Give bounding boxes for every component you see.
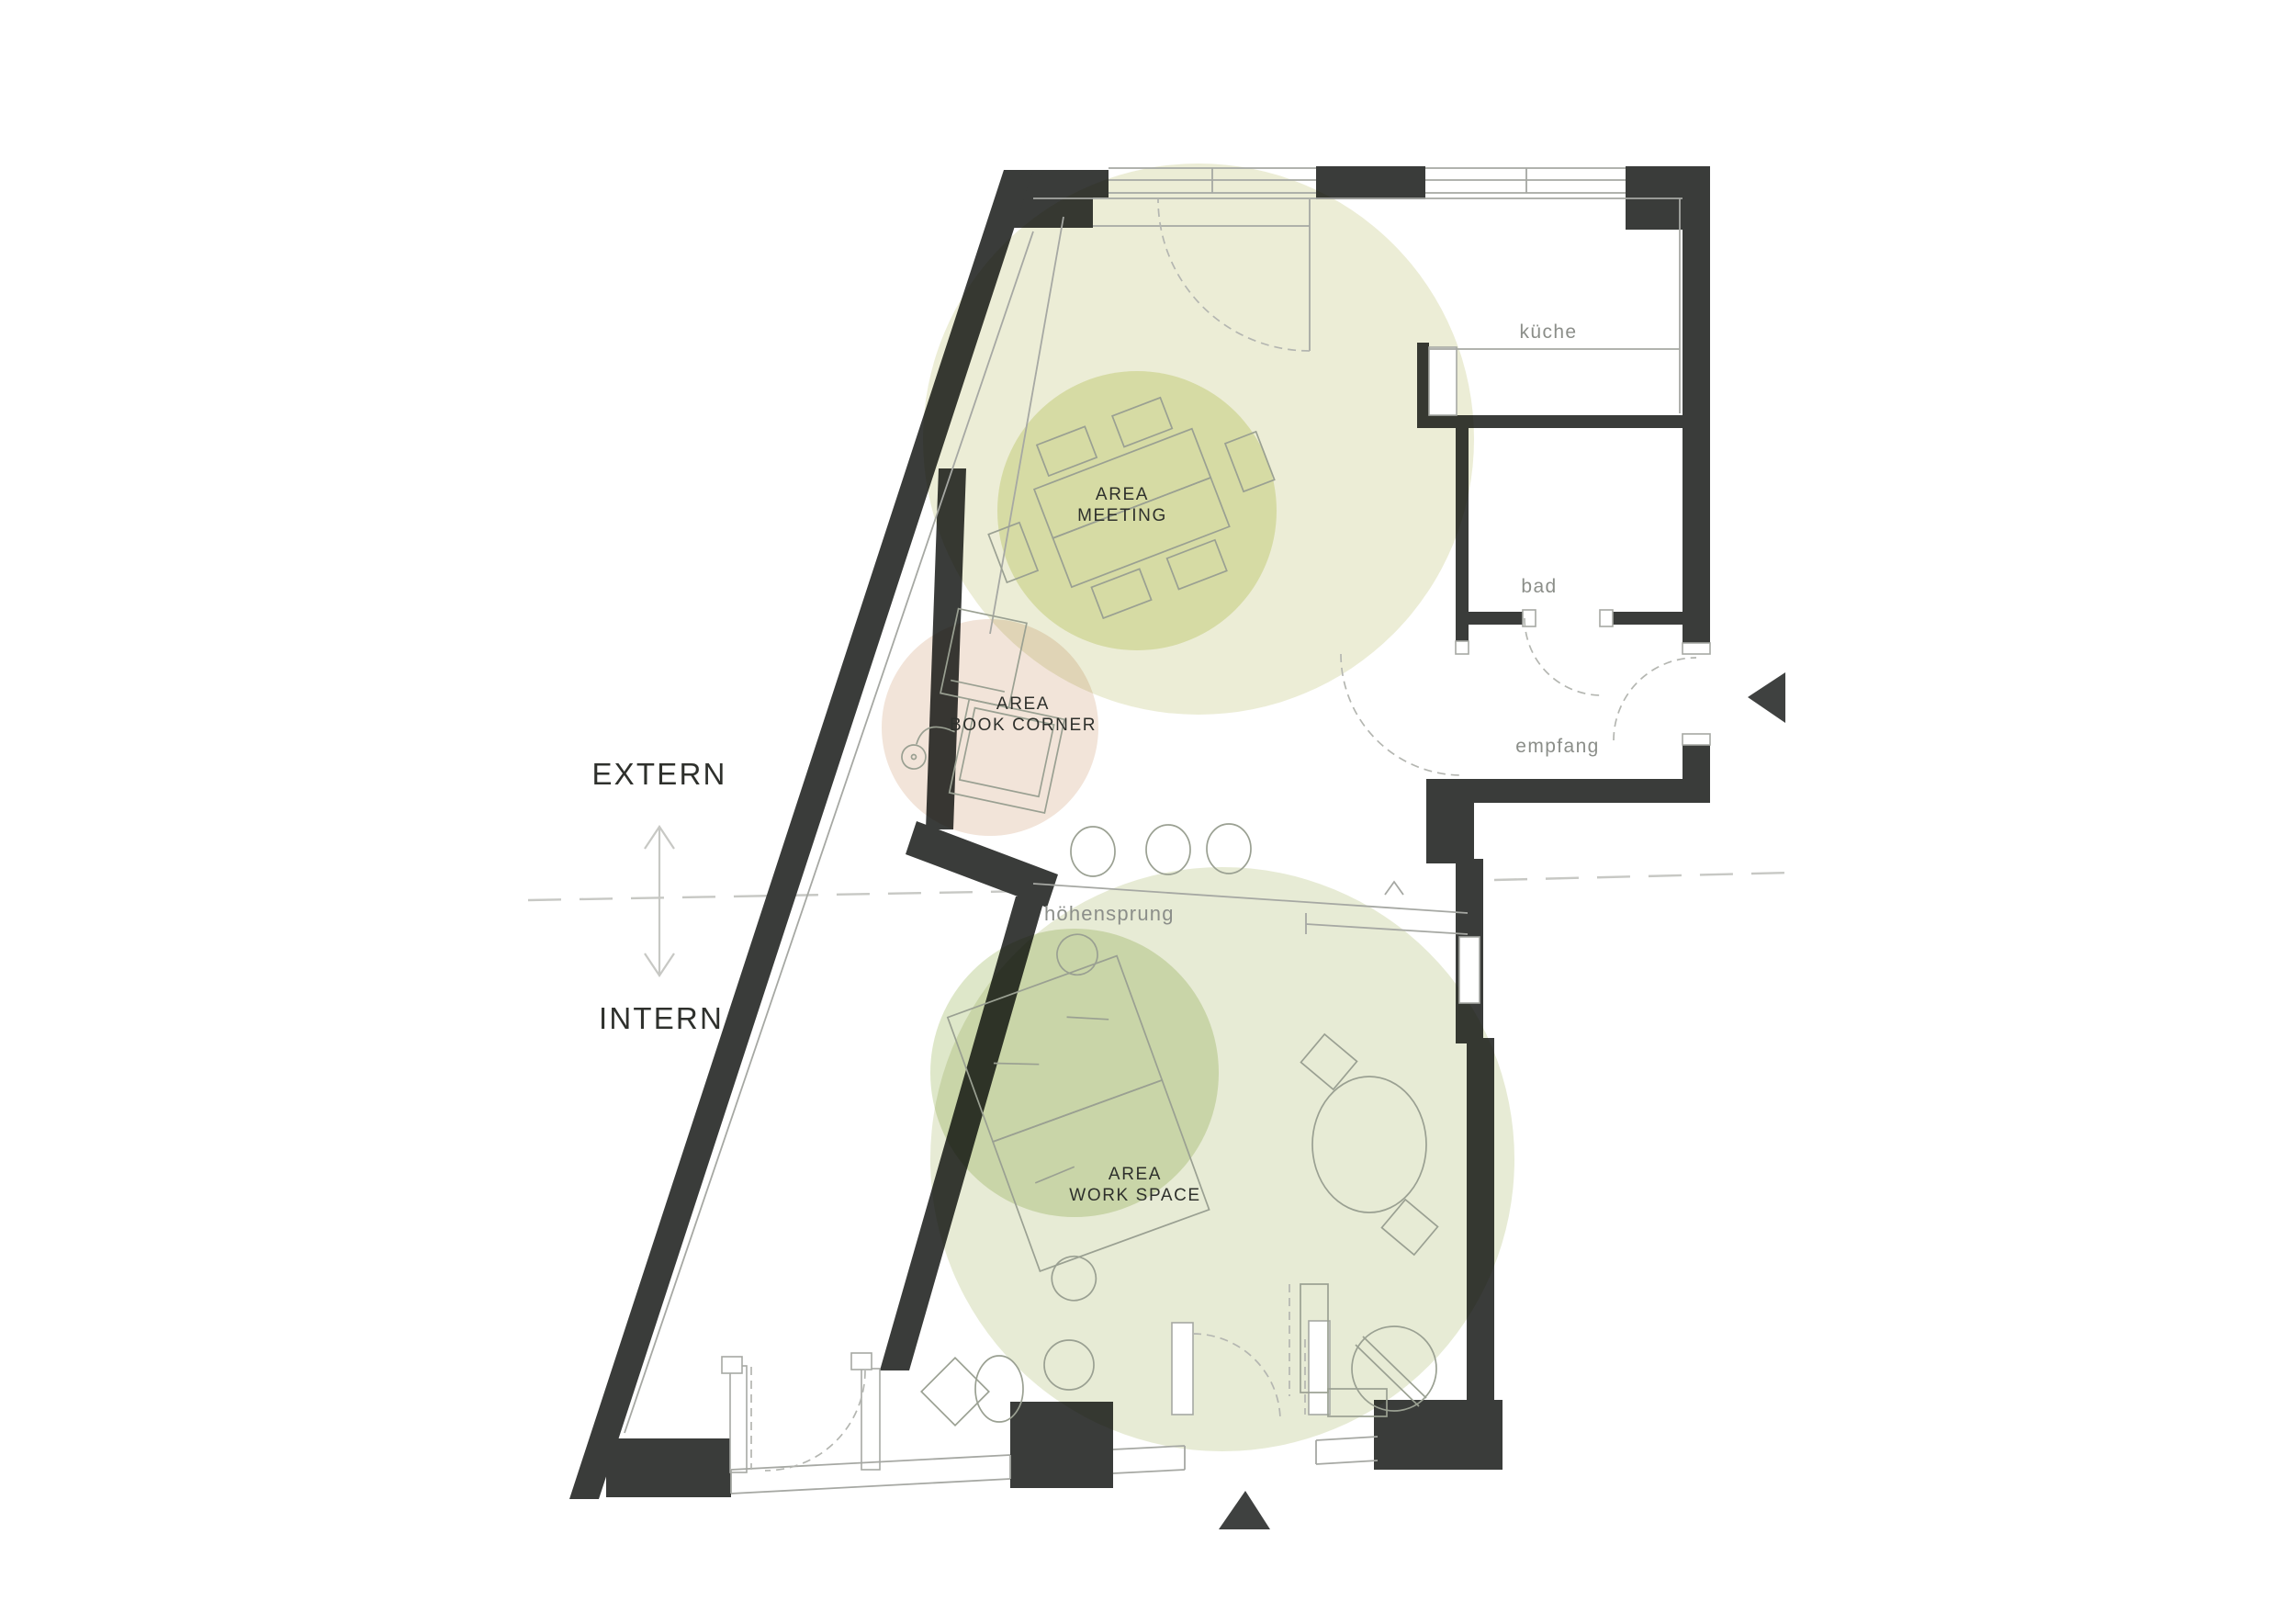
zone-label-book-corner-line2: BOOK CORNER <box>950 716 1097 735</box>
wall-bottom-left-corner <box>606 1438 731 1497</box>
bottom-band-line <box>731 1479 1010 1494</box>
pouf-oval <box>975 1356 1023 1422</box>
entrance-triangle-right <box>1748 672 1785 723</box>
wall-bath-bottom-right <box>1602 612 1683 625</box>
stool <box>1207 824 1251 874</box>
bottom-band-line <box>1113 1446 1185 1449</box>
bottom-band-line <box>1316 1460 1378 1464</box>
zone-label-meeting-line1: AREA <box>1096 485 1149 504</box>
level-step-label: höhensprung <box>1044 902 1175 925</box>
door-leaf-wedge-right <box>861 1369 880 1470</box>
wall-hall-step <box>1426 779 1474 863</box>
entrance-triangle-bottom <box>1219 1491 1270 1529</box>
floor-plan: AREA MEETING AREA BOOK CORNER AREA WORK … <box>0 0 2296 1624</box>
entry-door-jamb-top <box>1683 643 1710 654</box>
bottom-band-line <box>1113 1470 1185 1473</box>
door-arc-entrance-right <box>1614 658 1696 740</box>
room-label-bathroom: bad <box>1521 576 1557 597</box>
extern-label: EXTERN <box>591 757 726 791</box>
bottom-band-line <box>1316 1437 1378 1440</box>
door-leaf-entrance-right <box>1309 1321 1330 1415</box>
shaft-niche <box>1459 937 1480 1003</box>
room-label-reception: empfang <box>1515 736 1600 757</box>
stool <box>1071 827 1115 876</box>
bath-door-jamb-right <box>1600 610 1613 626</box>
wall-bath-bottom-left <box>1456 612 1525 625</box>
door-arc-bath <box>1525 618 1602 695</box>
zone-circles <box>882 164 1514 1451</box>
wall-kitchen-bottom <box>1456 415 1683 428</box>
entry-door-jamb-bottom <box>1683 734 1710 745</box>
door-hinge-wedge-right <box>851 1353 872 1370</box>
hall-door-jamb <box>1456 641 1469 654</box>
section-line-right <box>1494 873 1793 880</box>
door-arc-hall <box>1341 654 1462 775</box>
door-arc-wedge <box>765 1370 865 1471</box>
section-arrow <box>645 827 674 976</box>
door-leaf-wedge-left <box>730 1366 747 1472</box>
step-arrow-icon <box>1385 882 1403 895</box>
zone-label-work-space-line1: AREA <box>1109 1165 1162 1184</box>
pouf-diamond <box>921 1358 989 1426</box>
room-label-kitchen: küche <box>1519 321 1577 343</box>
intern-label: INTERN <box>599 1001 724 1035</box>
wall-hall-bottom <box>1474 779 1710 803</box>
wall-top-middle-pier <box>1316 166 1425 199</box>
zone-label-work-space-line2: WORK SPACE <box>1069 1186 1200 1205</box>
kitchen-counter-niche <box>1429 347 1457 415</box>
zone-label-book-corner-line1: AREA <box>996 694 1050 714</box>
wall-right-upper <box>1683 170 1710 648</box>
stool <box>1146 825 1190 874</box>
door-hinge-wedge-left <box>722 1357 742 1373</box>
zone-label-meeting-line2: MEETING <box>1077 506 1167 525</box>
plan-canvas: AREA MEETING AREA BOOK CORNER AREA WORK … <box>0 0 2296 1624</box>
door-leaf-entrance-left <box>1172 1323 1193 1415</box>
